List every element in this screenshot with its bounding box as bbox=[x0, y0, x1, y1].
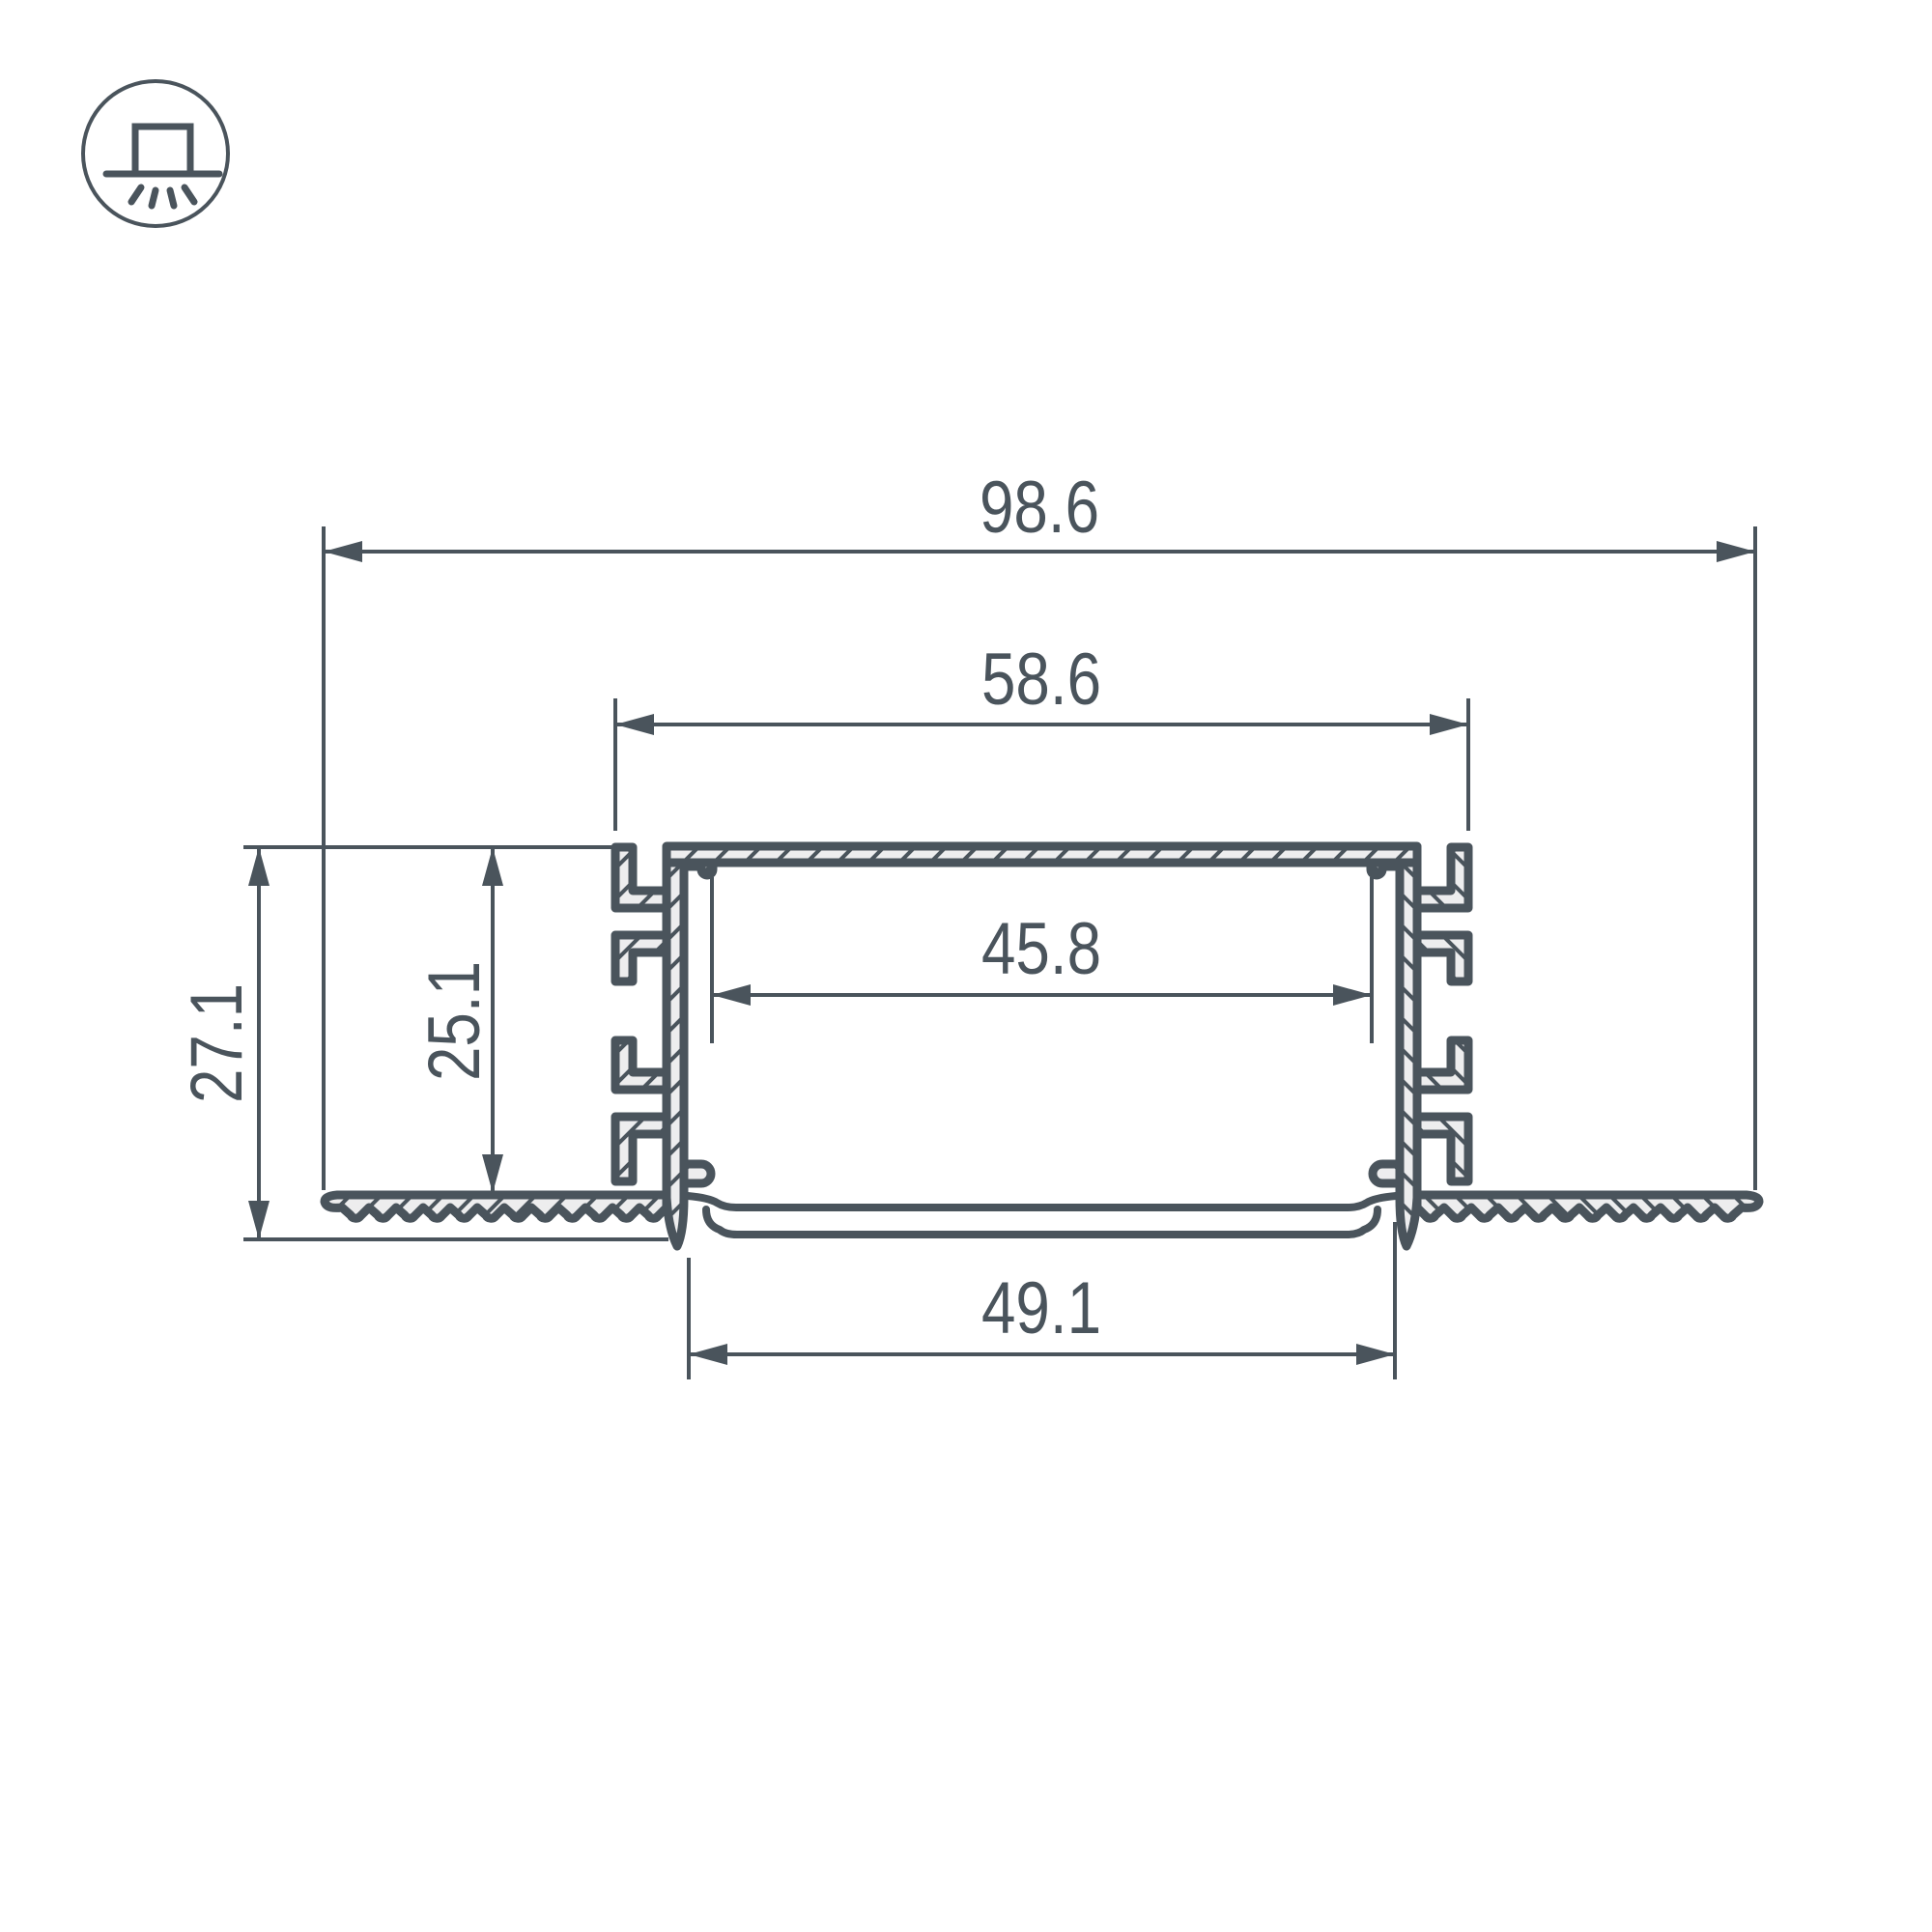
left-cover-ledge bbox=[684, 1164, 711, 1183]
dimension-label-inner-height: 25.1 bbox=[413, 961, 496, 1081]
dimension-label-total-height: 27.1 bbox=[176, 983, 258, 1103]
dimension-label-total-width: 98.6 bbox=[980, 467, 1099, 549]
drawing-canvas: 98.6 58.6 45.8 49.1 27.1 25.1 bbox=[0, 0, 1932, 1932]
right-flange bbox=[1417, 1195, 1759, 1218]
profile-technical-drawing: 98.6 58.6 45.8 49.1 27.1 25.1 bbox=[0, 0, 1932, 1932]
dimension-label-bottom-width: 49.1 bbox=[981, 1267, 1101, 1350]
right-cover-ledge bbox=[1373, 1164, 1400, 1183]
left-flange bbox=[325, 1195, 667, 1218]
dimension-label-body-width: 58.6 bbox=[981, 639, 1101, 721]
dimension-label-inner-width: 45.8 bbox=[981, 908, 1101, 990]
background bbox=[0, 0, 1932, 1932]
top-wall bbox=[667, 846, 1417, 863]
